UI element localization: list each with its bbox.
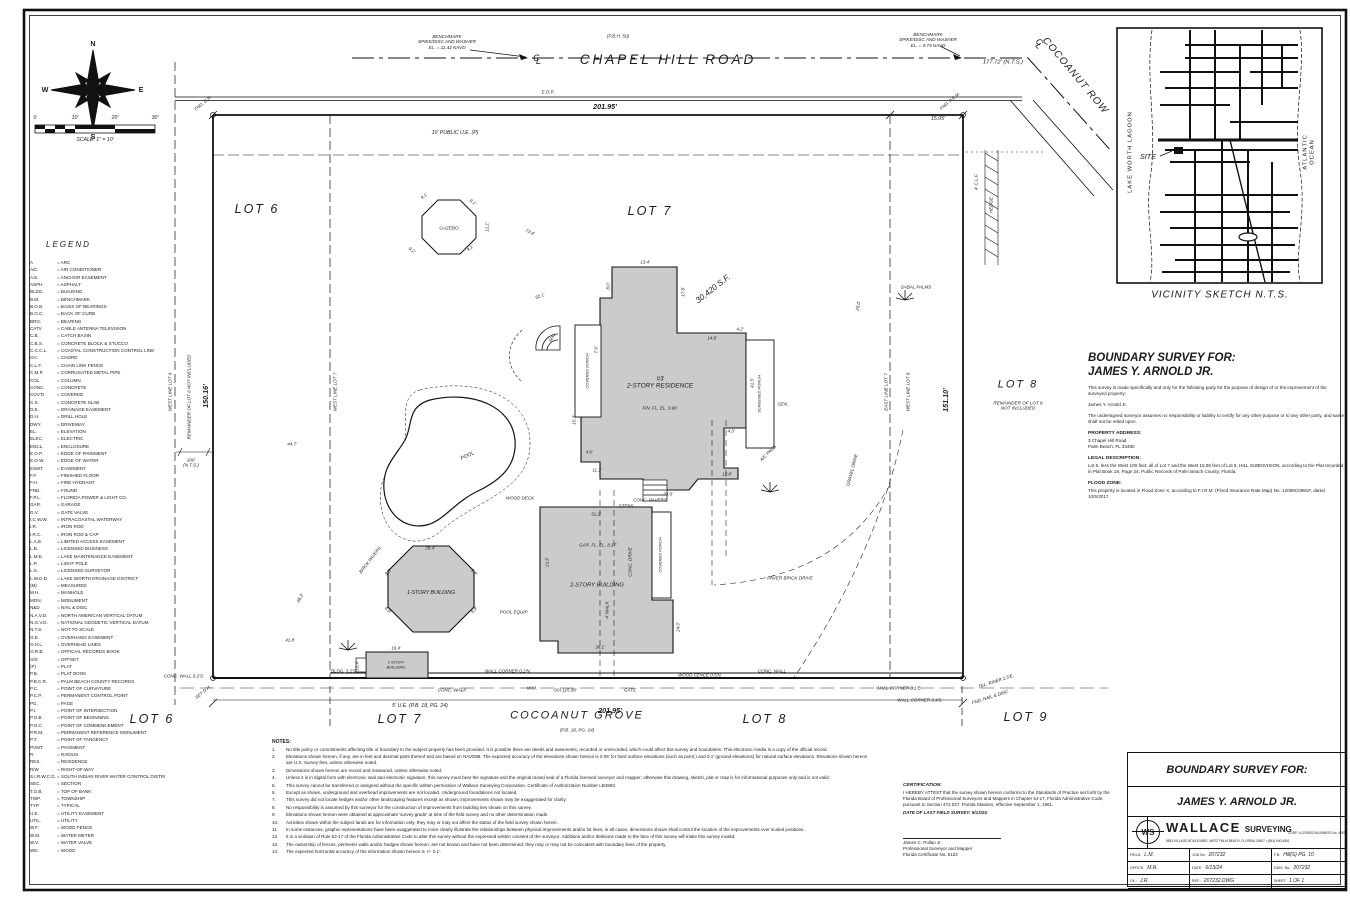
legend-item: R= RADIUS: [30, 751, 165, 758]
company-logo-icon: WS: [1136, 820, 1160, 844]
certification-block: CERTIFICATION: I HEREBY ATTEST that the …: [903, 783, 1110, 858]
dim-label: GEN.: [777, 402, 788, 407]
legend-item: CATV= CABLE ANTENNA TELEVISION: [30, 325, 165, 332]
note-item: 10.Activities shown within the subject l…: [272, 820, 872, 826]
east-line-lot7-label: EAST LINE LOT 7: [883, 373, 888, 411]
dim-label: 13.4': [640, 260, 650, 265]
centerline-symbol: CL: [533, 53, 543, 65]
dim-east-151: 151.10': [942, 388, 950, 412]
legend-item: GAR.= GARAGE: [30, 501, 165, 508]
legend-item: DWY.= DRIVEWAY: [30, 421, 165, 428]
company-name-2: SURVEYING: [1245, 825, 1292, 834]
title-block-header: BOUNDARY SURVEY FOR:: [1128, 753, 1346, 787]
legend-list: A= ARCA/C= AIR CONDITIONERA.E.= ANCHOR E…: [30, 259, 165, 854]
legend-item: G.V.= GATE VALVE: [30, 509, 165, 516]
scale-tick: 30': [152, 116, 159, 122]
legend-item: COL.= COLUMN: [30, 377, 165, 384]
legend-item: O.R.B.= OFFICIAL RECORDS BOOK: [30, 648, 165, 655]
legend-item: RES.= RESIDENCE: [30, 758, 165, 765]
dim-label: 41.5': [750, 378, 755, 388]
legend-item: P.T.= POINT OF TANGENCY: [30, 736, 165, 743]
flood-heading: FLOOD ZONE:: [1088, 481, 1345, 488]
legend-item: ESMT.= EASEMENT: [30, 465, 165, 472]
legend-item: I.C.W.W.= INTRACOASTAL WATERWAY: [30, 516, 165, 523]
legend-item: CONC.= CONCRETE: [30, 384, 165, 391]
dim-15-05: 15.05': [931, 117, 945, 123]
scale-tick: 0: [34, 116, 37, 122]
legend-item: B.M.= BENCHMARK: [30, 296, 165, 303]
lot-8-bottom-label: LOT 8: [743, 712, 788, 726]
dim-label: 12.1': [485, 222, 490, 232]
road-name-chapel-hill: CHAPEL HILL ROAD: [580, 52, 757, 68]
title-block-cell: JOB No.207232: [1190, 849, 1272, 862]
legend-item: N.G.V.D.= NATIONAL GEODETIC VERTICAL DAT…: [30, 619, 165, 626]
legend-item: EL.= ELEVATION: [30, 428, 165, 435]
legend-item: F.F.= FINISHED FLOOR: [30, 472, 165, 479]
benchmark-note-right: BENCHMARK SPIKE/DISC AND WASHER EL. = 9.…: [899, 32, 957, 48]
vicinity-caption: VICINITY SKETCH N.T.S.: [1151, 290, 1289, 301]
company-address: 5553 VILLAGE BOULEVARD, WEST PALM BEACH,…: [1166, 839, 1290, 843]
legend-item: PVMT.= PAVEMENT: [30, 744, 165, 751]
note-item: 4.Unless it is in digital form with elec…: [272, 775, 872, 781]
note-item: 8.No responsibility is assumed by this s…: [272, 805, 872, 811]
legend-item: TYP.= TYPICAL: [30, 802, 165, 809]
dim-label: 14.8': [707, 336, 717, 341]
info-disclaimer: The undersigned surveyor assumes no resp…: [1088, 413, 1345, 425]
road-plat-ref: (P.B.H. 50): [607, 33, 629, 38]
dim-label: 21.0': [545, 557, 550, 567]
legend-item: U.E.= UTILITY EASEMENT: [30, 810, 165, 817]
legend-item: P.C.= POINT OF CURVATURE: [30, 685, 165, 692]
pool-outline: [384, 397, 515, 526]
road-name-cocoanut-grove: COCOANUT GROVE: [510, 710, 644, 723]
drive-label: PAVER BRICK DRIVE: [767, 575, 813, 580]
legend-item: P.O.C.= POINT OF COMMENCEMENT: [30, 722, 165, 729]
legend-item: E.O.W.= EDGE OF WATER: [30, 457, 165, 464]
dim-label: 4.6': [585, 450, 592, 455]
porch-left-label: COVERED PORCH: [586, 353, 591, 388]
building1-outline: [388, 546, 474, 632]
dim-label: WOOD DECK: [506, 496, 534, 501]
info-title: BOUNDARY SURVEY FOR:: [1088, 352, 1345, 366]
title-block-cell: F.B.Hill(S) PG. 10: [1272, 849, 1346, 862]
legend-item: A/C= AIR CONDITIONER: [30, 266, 165, 273]
note-item: 14.The expected horizontal accuracy of t…: [272, 849, 872, 855]
note-item: 12.It is a violation of Rule 5J-17 of th…: [272, 834, 872, 840]
legend-item: C.M.P.= CORRUGATED METAL PIPE: [30, 369, 165, 376]
legend-item: L.B.= LICENSED BUSINESS: [30, 545, 165, 552]
title-block-cell: REF.:207232.DWG: [1190, 875, 1272, 888]
dim-label: 16.4': [391, 646, 401, 651]
legend-item: O.E.= OVERHANG EASEMENT: [30, 634, 165, 641]
title-block-cell: DATE:6/13/24: [1190, 862, 1272, 875]
legend-item: O/S= OFFSET: [30, 656, 165, 663]
west-line-lot6-label: WEST LINE LOT 6: [167, 373, 172, 412]
vicinity-lagoon-label: LAKE WORTH LAGOON: [1128, 111, 1135, 193]
legend-item: S.I.R.W.C.D.= SOUTH INDIAN RIVER WATER C…: [30, 773, 165, 780]
dim-label: CONC. WALK: [438, 688, 466, 693]
legend-item: L.S.= LICENSED SURVEYOR: [30, 567, 165, 574]
legend-item: P.C.P.= PERMANENT CONTROL POINT: [30, 692, 165, 699]
legend-item: O.H.L.= OVERHEAD LINES: [30, 641, 165, 648]
legend: LEGEND A= ARCA/C= AIR CONDITIONERA.E.= A…: [30, 240, 165, 854]
legend-item: ENCL.= ENCLOSURE: [30, 443, 165, 450]
dim-label: POOL EQUIP.: [500, 610, 528, 615]
legend-item: TWP.= TOWNSHIP: [30, 795, 165, 802]
dim-label: CONC. WALL: [758, 669, 786, 674]
title-block-cell: DWG. No.207232: [1272, 862, 1346, 875]
legend-item: N&D= NAIL & DISC: [30, 604, 165, 611]
lot-8-remainder: REMAINDER OF LOT 8 NOT INCLUDED: [993, 401, 1042, 412]
dim-label: HEDGE: [989, 197, 994, 213]
legend-title: LEGEND: [46, 240, 165, 249]
legend-item: P.R.M.= PERMANENT REFERENCE MONUMENT: [30, 729, 165, 736]
legend-item: F.H.= FIRE HYDRANT: [30, 479, 165, 486]
note-item: 3.Dimensions shown hereon are record and…: [272, 768, 872, 774]
notes-block: NOTES: 1.No title policy or commitments …: [272, 739, 872, 857]
dim-label: CONC. WALL 6.2'S.: [164, 674, 204, 679]
flood-zone: This property is located in Flood Zone X…: [1088, 488, 1345, 500]
dim-label: 31.2': [591, 512, 601, 517]
legend-item: (P)= PLAT: [30, 663, 165, 670]
dim-front-201: 201.95': [593, 103, 617, 111]
dim-label: 44.7': [287, 442, 297, 447]
legend-item: L.P.= LIGHT POLE: [30, 560, 165, 567]
legend-item: W.F.= WOOD FENCE: [30, 824, 165, 831]
field-survey-date: DATE OF LAST FIELD SURVEY: 6/13/24: [903, 810, 1110, 816]
note-item: 7.This survey did not locate hedges and/…: [272, 797, 872, 803]
dim-label: WALL CORNER 3.4'S.: [897, 698, 942, 703]
legend-item: M.H.= MANHOLE: [30, 589, 165, 596]
company-name: WALLACE: [1166, 820, 1241, 835]
note-item: 9.Elevations shown hereon were obtained …: [272, 812, 872, 818]
dim-label: WOOD FENCE 0.5'N.: [678, 673, 722, 678]
survey-info-block: BOUNDARY SURVEY FOR: JAMES Y. ARNOLD JR.…: [1088, 352, 1345, 505]
legend-item: N.T.S.= NOT TO SCALE: [30, 626, 165, 633]
title-block-grid: FIELD:L.M.JOB No.207232F.B.Hill(S) PG. 1…: [1128, 849, 1346, 889]
grove-plat-ref: (P.B. 18, PG. 24): [560, 727, 594, 732]
address-heading: PROPERTY ADDRESS:: [1088, 431, 1345, 438]
vicinity-site-label: SITE: [1140, 153, 1156, 161]
legend-item: N.A.V.D.= NORTH AMERICAN VERTICAL DATUM: [30, 612, 165, 619]
dim-label: WALL CORNER 3.1'E.: [876, 686, 921, 691]
notes-list: 1.No title policy or commitments affecti…: [272, 747, 872, 855]
dim-label: WALL CORNER 0.2'N.: [485, 669, 531, 674]
dim-label: 24.0': [676, 622, 681, 632]
legend-item: I.R.C.= IRON ROD & CAP: [30, 531, 165, 538]
dim-label: 10.3': [572, 415, 577, 425]
dim-label: 17.8': [681, 287, 686, 297]
legend-item: B.O.C.= BACK OF CURB: [30, 310, 165, 317]
legend-item: R/W= RIGHT-OF-WAY: [30, 766, 165, 773]
company-logo-row: WS WALLACE SURVEYING CORP. LICENSED BUSI…: [1128, 817, 1346, 849]
legend-item: D.H.= DRILL HOLE: [30, 413, 165, 420]
company-subline: CORP. LICENSED BUSINESS No. 4993: [1288, 831, 1345, 835]
note-item: 5.This survey cannot be transferred or a…: [272, 783, 872, 789]
title-block-cell: OFFICE:M.R.: [1128, 862, 1190, 875]
lot6-remainder: REMAINDER OF LOT 6 NOT INCLUDED: [186, 355, 191, 440]
gazebo-label: GAZEBO: [439, 225, 458, 230]
dim-label: GAR. FL. EL. 8.17': [579, 543, 617, 548]
porch-right-label: SCREENED PORCH: [758, 375, 763, 413]
dim-label: 7.9': [594, 346, 599, 353]
legend-item: P.B.C.R.= PALM BEACH COUNTY RECORDS: [30, 678, 165, 685]
lot-8-label: LOT 8: [998, 379, 1039, 392]
compass-w: W: [42, 86, 49, 94]
dim-label: SABAL PALMS: [901, 285, 932, 290]
benchmark-note-left: BENCHMARK SPIKE/DISC AND WASHER EL. = 11…: [418, 34, 476, 50]
easement-5ft-label: 5' U.E. (P.B. 18, PG. 24): [392, 704, 448, 710]
legend-item: BLDG.= BUILDING: [30, 288, 165, 295]
lot-7-label: LOT 7: [628, 204, 673, 218]
notes-title: NOTES:: [272, 739, 872, 745]
legend-item: P.O.B.= POINT OF BEGINNING: [30, 714, 165, 721]
address-line2: Palm Beach, FL 33480: [1088, 444, 1345, 450]
legend-item: A.E.= ANCHOR EASEMENT: [30, 274, 165, 281]
info-client: JAMES Y. ARNOLD JR.: [1088, 366, 1345, 380]
surveyor-license: Florida Certificate No. 5122: [903, 852, 1110, 858]
info-party: James Y. Arnold Jr.: [1088, 402, 1345, 408]
dim-label: GATE: [624, 688, 636, 693]
info-purpose: This survey is made specifically and onl…: [1088, 385, 1345, 397]
dim-label: CONC. DRIVE: [628, 547, 633, 577]
scale-tick: 10': [72, 116, 79, 122]
dim-label: 4.2': [736, 327, 743, 332]
legend-item: W.V.= WATER VALVE: [30, 839, 165, 846]
title-block-cell: SHEET1 OF 1: [1272, 875, 1346, 888]
legend-item: C.C.C.L.= COASTAL CONSTRUCTION CONTROL L…: [30, 347, 165, 354]
legend-item: BRG.= BEARING: [30, 318, 165, 325]
legend-item: ELEC.= ELECTRIC: [30, 435, 165, 442]
building2-label: 2-STORY BUILDING: [570, 583, 624, 590]
dim-label: 4' C.L.F.: [974, 174, 979, 190]
residence-label: #3 2-STORY RESIDENCE: [627, 376, 693, 391]
compass-rose: [51, 50, 135, 130]
note-item: 1.No title policy or commitments affecti…: [272, 747, 872, 753]
legend-item: CH.= CHORD: [30, 354, 165, 361]
scale-caption: SCALE: 1" = 10': [76, 138, 113, 144]
legend-item: COV'D= COVERED: [30, 391, 165, 398]
dim-label: 4.3': [727, 429, 734, 434]
small-building-label: 1-STORY BUILDING: [387, 660, 406, 669]
title-block-cell: CK.:J.R.: [1128, 875, 1190, 888]
dim-label: 23.0': [663, 492, 673, 497]
title-block: BOUNDARY SURVEY FOR: JAMES Y. ARNOLD JR.…: [1127, 752, 1347, 887]
certification-heading: CERTIFICATION:: [903, 783, 1110, 788]
legend-item: L.M.E.= LAKE MAINTENANCE EASEMENT: [30, 553, 165, 560]
legal-heading: LEGAL DESCRIPTION:: [1088, 456, 1345, 463]
dim-label: 12.8': [722, 472, 732, 477]
dim-west-150: 150.16': [202, 384, 210, 408]
legal-description: Lot 6, less the West 100 feet; all of Lo…: [1088, 463, 1345, 475]
dim-label: CONC. PAVERS: [633, 498, 666, 503]
legend-item: (M)= MEASURED: [30, 582, 165, 589]
dim-label: FIN. FL. EL. 9.66': [642, 406, 677, 411]
dim-label: 36.1': [595, 645, 605, 650]
dim-label: W.M.: [527, 686, 537, 691]
west-line-lot7-label: WEST LINE LOT 7: [332, 373, 337, 412]
dim-label: STEPS: [619, 504, 634, 509]
dim-label: 41.8': [285, 638, 295, 643]
legend-item: SEC.= SECTION: [30, 780, 165, 787]
scale-tick: 20': [112, 116, 119, 122]
legend-item: D.E.= DRAINAGE EASEMENT: [30, 406, 165, 413]
dim-label: 28.4': [425, 546, 435, 551]
lot-6-label: LOT 6: [235, 202, 280, 216]
survey-sheet: N E S W 0 10' 20' 30' SCALE: 1" = 10' BE…: [0, 0, 1350, 900]
legend-item: B.O.B.= BASIS OF BEARINGS: [30, 303, 165, 310]
legend-item: FND.= FOUND: [30, 487, 165, 494]
legend-item: UTIL.= UTILITY: [30, 817, 165, 824]
vicinity-ocean-label: ATLANTIC OCEAN: [1302, 132, 1315, 173]
dim-label: 8.0': [606, 282, 611, 289]
site-marker: [1174, 147, 1183, 154]
certification-body: I HEREBY ATTEST that the survey shown he…: [903, 790, 1110, 808]
legend-item: WD.= WOOD: [30, 847, 165, 854]
dim-label: BLDG. 3.2'S.: [331, 669, 357, 674]
legend-item: ASPH.= ASPHALT: [30, 281, 165, 288]
dim-100-nts: 100' (N.T.S.): [183, 458, 199, 469]
legend-item: I.R.= IRON ROD: [30, 523, 165, 530]
compass-e: E: [139, 86, 144, 94]
building1-label: 1-STORY BUILDING: [407, 591, 455, 597]
note-item: 11.In some instances, graphic representa…: [272, 827, 872, 833]
easement-10ft-label: 10' PUBLIC U.E. (P): [432, 131, 479, 137]
legend-item: L.W.D.D.= LAKE WORTH DRAINAGE DISTRICT: [30, 575, 165, 582]
lot-7-bottom-label: LOT 7: [378, 712, 423, 726]
dim-label: O/A 115.09': [553, 688, 576, 693]
legend-item: C.B.= CATCH BASIN: [30, 332, 165, 339]
legend-item: W.M.= WATER METER: [30, 832, 165, 839]
dim-label: 4' WALK: [605, 601, 610, 618]
legend-item: L.A.E.= LIMITED ACCESS EASEMENT: [30, 538, 165, 545]
legend-item: MON.= MONUMENT: [30, 597, 165, 604]
dim-label: E.O.P.: [542, 90, 555, 95]
note-item: 2.Elevations shown hereon, if any, are i…: [272, 754, 872, 766]
legend-item: C.S.= CONCRETE SLAB: [30, 399, 165, 406]
compass-n: N: [90, 40, 95, 48]
legend-item: C.B.S.= CONCRETE BLOCK & STUCCO: [30, 340, 165, 347]
note-item: 6.Except as shown, underground and overh…: [272, 790, 872, 796]
dim-label: 11.1': [592, 468, 601, 473]
legend-item: E.O.P.= EDGE OF PAVEMENT: [30, 450, 165, 457]
legend-item: A= ARC: [30, 259, 165, 266]
lot-9-label: LOT 9: [1004, 710, 1049, 724]
legend-item: C.L.F.= CHAIN LINK FENCE: [30, 362, 165, 369]
legend-item: P.B.= PLAT BOOK: [30, 670, 165, 677]
dim-177-72: 177.72' (N.T.S.): [983, 60, 1023, 67]
title-block-cell: FIELD:L.M.: [1128, 849, 1190, 862]
porch2-label: COVERED PORCH: [659, 537, 664, 572]
title-block-client: JAMES Y. ARNOLD JR.: [1128, 787, 1346, 817]
legend-item: T.O.B.= TOP OF BANK: [30, 788, 165, 795]
note-item: 13.The ownership of fences, perimeter wa…: [272, 842, 872, 848]
legend-item: F.P.L.= FLORIDA POWER & LIGHT CO.: [30, 494, 165, 501]
legend-item: PG.= PAGE: [30, 700, 165, 707]
west-line-lot8-label: WEST LINE LOT 8: [905, 373, 910, 412]
legend-item: P.I.= POINT OF INTERSECTION: [30, 707, 165, 714]
